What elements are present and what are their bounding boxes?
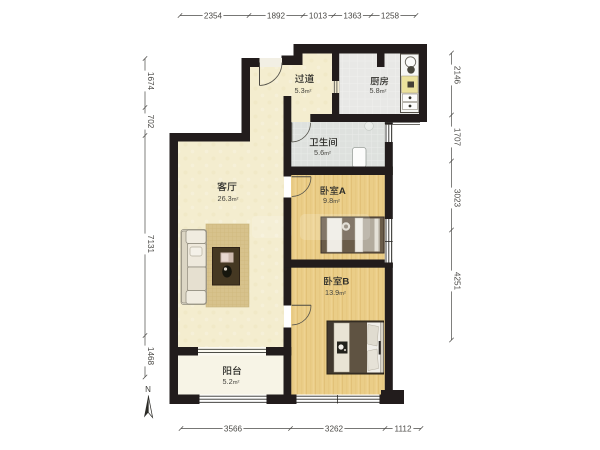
svg-text:1013: 1013: [309, 11, 328, 20]
svg-text:1468: 1468: [146, 347, 155, 366]
svg-text:7131: 7131: [146, 235, 155, 254]
svg-text:1892: 1892: [267, 11, 286, 20]
svg-text:4251: 4251: [452, 272, 461, 291]
svg-text:3023: 3023: [452, 189, 461, 208]
svg-text:1112: 1112: [395, 424, 412, 433]
svg-text:2146: 2146: [452, 66, 461, 85]
svg-text:A: A: [339, 186, 346, 197]
svg-text:1674: 1674: [146, 72, 155, 91]
svg-text:702: 702: [146, 115, 155, 129]
svg-text:3566: 3566: [224, 424, 243, 433]
svg-text:B: B: [342, 277, 349, 288]
svg-text:1258: 1258: [381, 11, 400, 20]
svg-text:1363: 1363: [343, 11, 362, 20]
svg-text:1707: 1707: [452, 128, 461, 147]
svg-text:N: N: [145, 385, 151, 394]
svg-text:3262: 3262: [325, 424, 344, 433]
svg-text:2354: 2354: [204, 11, 223, 20]
